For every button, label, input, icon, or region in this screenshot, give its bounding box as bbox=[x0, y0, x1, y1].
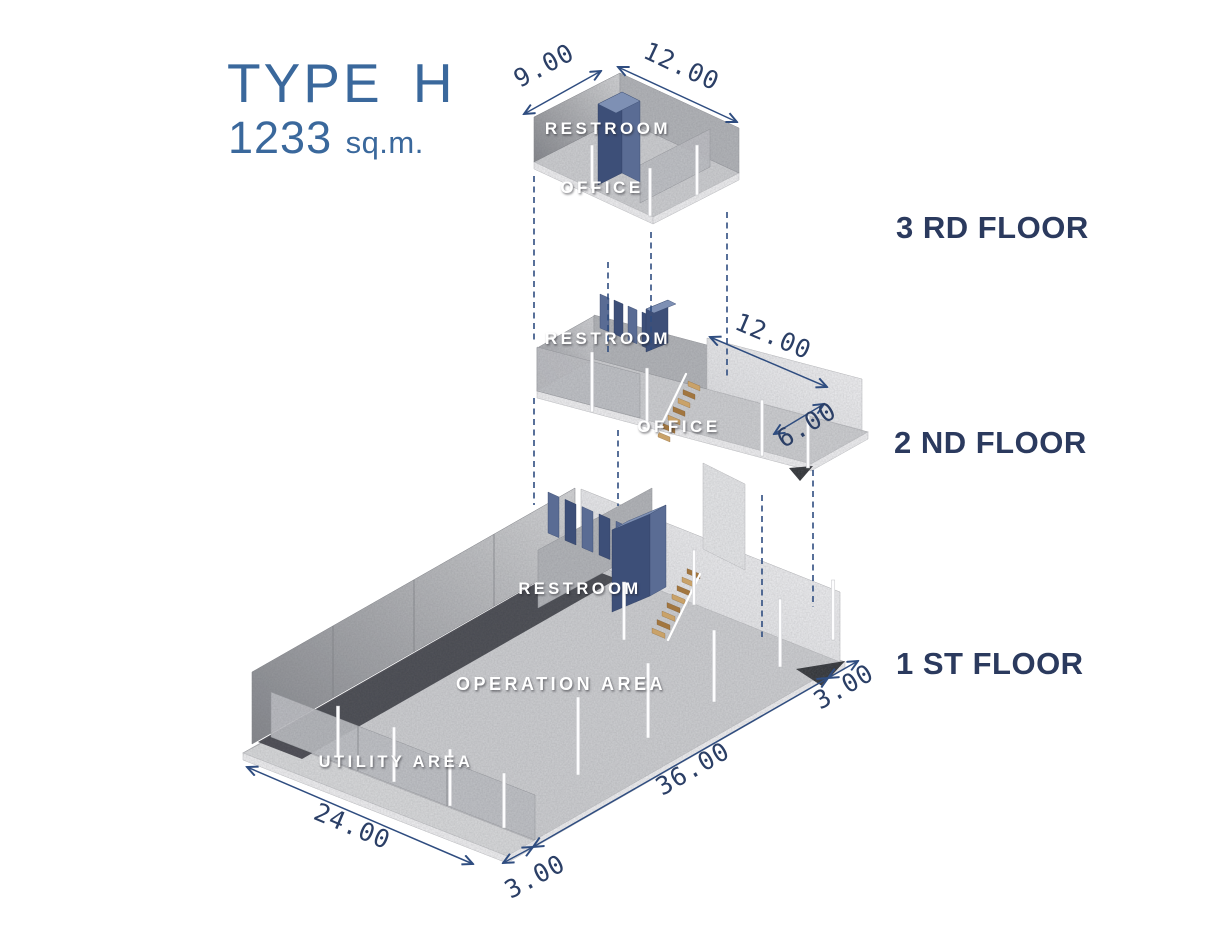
column-post bbox=[695, 145, 698, 195]
floor3-restroom-core bbox=[598, 92, 640, 185]
area-unit: sq.m. bbox=[346, 125, 424, 160]
area-text: 1233 sq.m. bbox=[228, 112, 424, 163]
floor3-width-dim-text: 9.00 bbox=[509, 38, 579, 94]
floor1-operation-area-label: OPERATION AREA bbox=[456, 674, 666, 694]
column-post bbox=[778, 599, 781, 667]
floor-2-unit: RESTROOM OFFICE bbox=[537, 294, 868, 481]
floor1-name-label: 1 ST FLOOR bbox=[896, 646, 1084, 681]
column-post bbox=[712, 630, 715, 702]
page-title: TYPE H bbox=[227, 52, 456, 114]
column-post bbox=[336, 706, 339, 758]
floor3-length-dim-text: 12.00 bbox=[639, 36, 724, 96]
floor2-right-corner-shadow bbox=[789, 466, 813, 481]
title-block: TYPE H 1233 sq.m. bbox=[227, 52, 456, 163]
floor3-name-label: 3 RD FLOOR bbox=[896, 210, 1089, 245]
axonometric-floor-diagram: RESTROOM OPERATION AREA UTILITY AREA bbox=[0, 0, 1226, 947]
diagram-svg: RESTROOM OPERATION AREA UTILITY AREA bbox=[0, 0, 1226, 947]
stall-partition-fin bbox=[582, 507, 593, 553]
floor3-restroom-label: RESTROOM bbox=[545, 119, 671, 138]
column-post bbox=[576, 697, 579, 775]
stall-block-side bbox=[650, 505, 666, 596]
column-post bbox=[648, 168, 651, 216]
floor1-restroom-label: RESTROOM bbox=[518, 580, 641, 598]
stall-partition-fin bbox=[599, 514, 610, 560]
column-post bbox=[831, 580, 834, 640]
column-post bbox=[590, 352, 593, 412]
column-post bbox=[502, 773, 505, 828]
floor3-office-label: OFFICE bbox=[560, 178, 643, 197]
column-post bbox=[692, 550, 695, 605]
column-post bbox=[760, 400, 763, 456]
floor2-name-label: 2 ND FLOOR bbox=[894, 425, 1087, 460]
floor-3-unit: RESTROOM OFFICE bbox=[534, 73, 739, 224]
stall-partition-fin bbox=[565, 499, 576, 545]
floor2-office-label: OFFICE bbox=[637, 417, 720, 436]
stall-partition-fin bbox=[548, 492, 559, 538]
area-value: 1233 bbox=[228, 112, 332, 163]
floor1-utility-area-label: UTILITY AREA bbox=[319, 753, 474, 771]
